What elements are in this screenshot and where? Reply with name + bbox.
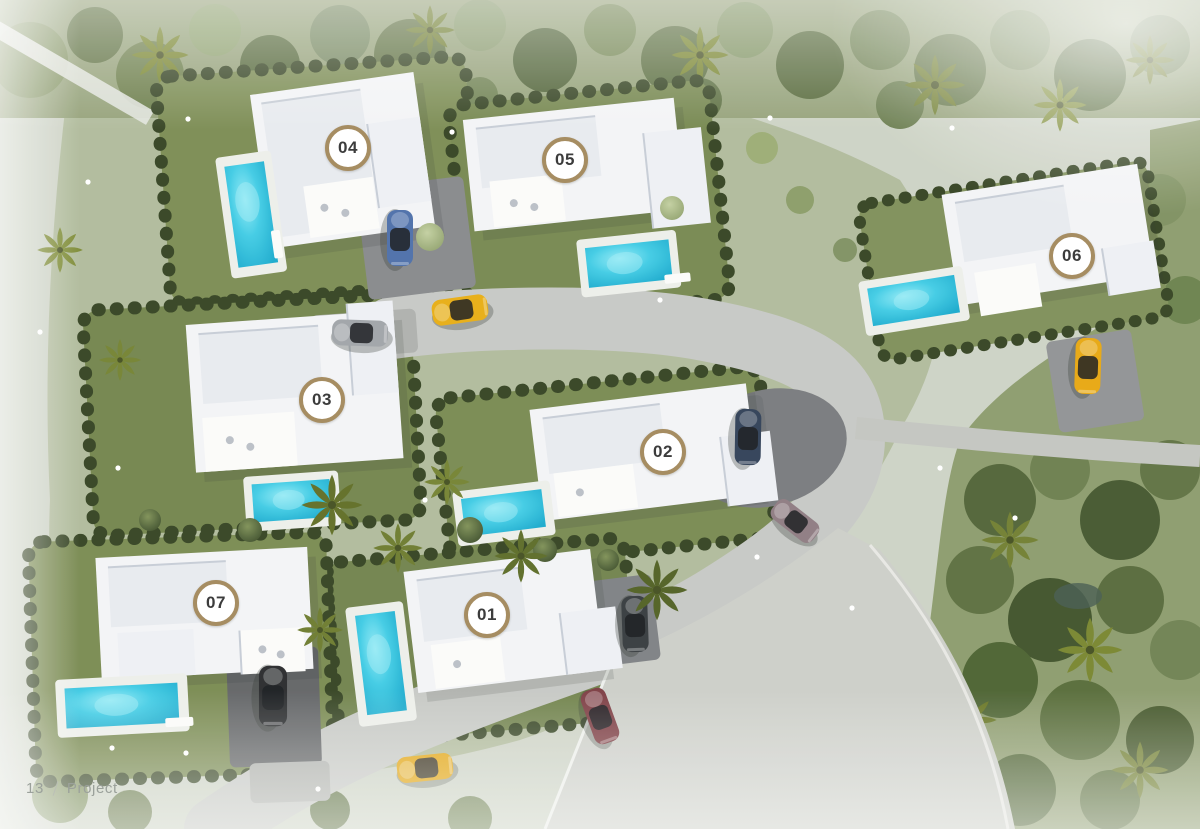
page-footer: 13 Project — [26, 780, 118, 797]
aerial-render — [0, 0, 1200, 829]
footer-divider — [53, 781, 59, 796]
villa-number-03: 03 — [312, 390, 332, 410]
villa-badge-01: 01 — [464, 592, 510, 638]
page-number: 13 — [26, 780, 44, 797]
villa-number-06: 06 — [1062, 246, 1082, 266]
footer-section-label: Project — [67, 780, 118, 797]
villa-number-01: 01 — [477, 605, 497, 625]
villa-badge-04: 04 — [325, 125, 371, 171]
villa-number-04: 04 — [338, 138, 358, 158]
villa-number-05: 05 — [555, 150, 575, 170]
villa-badge-06: 06 — [1049, 233, 1095, 279]
villa-badge-02: 02 — [640, 429, 686, 475]
villa-badge-03: 03 — [299, 377, 345, 423]
villa-badge-07: 07 — [193, 580, 239, 626]
haze-overlays — [0, 0, 1200, 829]
villa-badge-05: 05 — [542, 137, 588, 183]
site-plan-page: 04 05 06 03 02 01 07 13 Project — [0, 0, 1200, 829]
villa-number-02: 02 — [653, 442, 673, 462]
villa-number-07: 07 — [206, 593, 226, 613]
